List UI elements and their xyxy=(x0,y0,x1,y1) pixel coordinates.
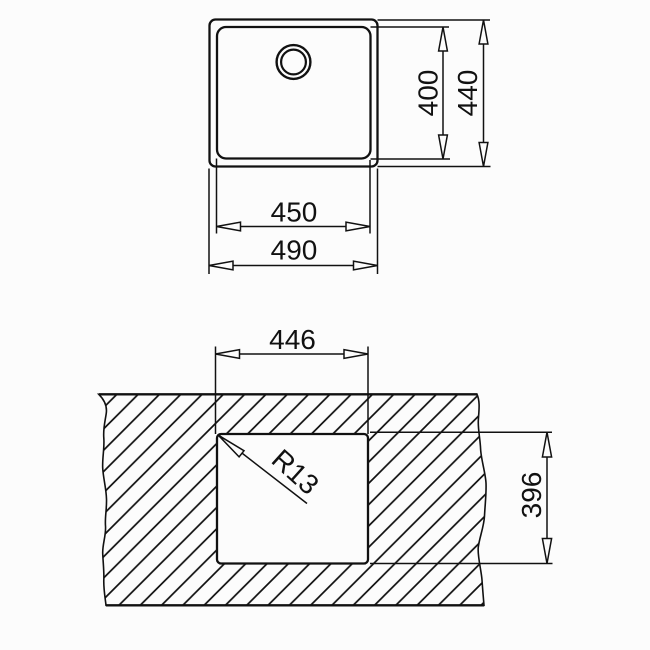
svg-text:450: 450 xyxy=(271,197,318,228)
svg-text:396: 396 xyxy=(516,472,547,519)
svg-text:446: 446 xyxy=(269,324,316,355)
svg-text:490: 490 xyxy=(271,235,318,266)
svg-text:440: 440 xyxy=(452,70,483,117)
svg-text:400: 400 xyxy=(413,70,444,117)
